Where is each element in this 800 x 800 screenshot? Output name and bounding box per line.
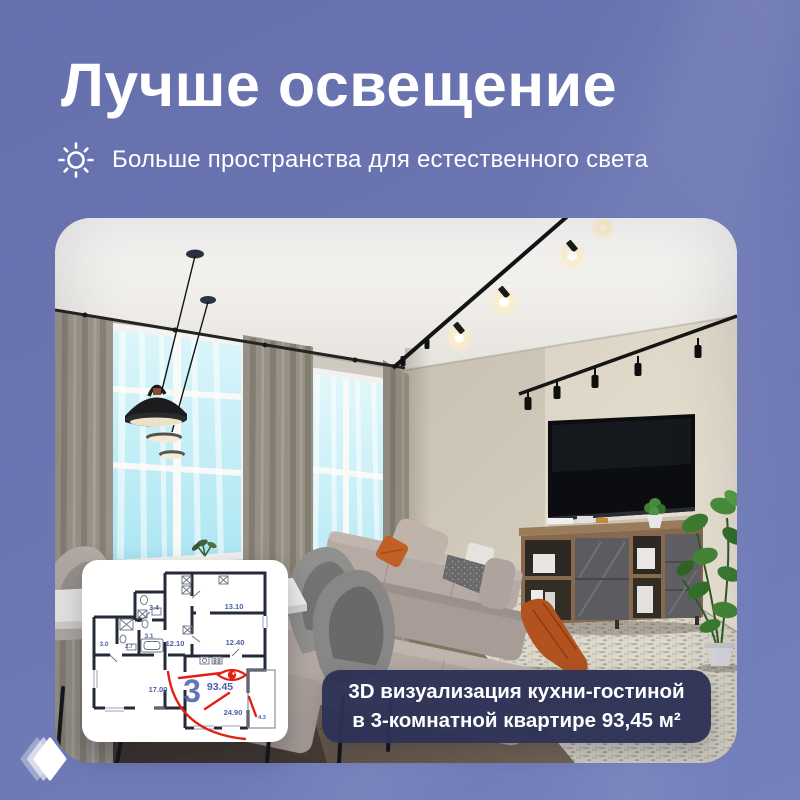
room-area-label: 24.90 bbox=[224, 708, 243, 717]
subtitle: Больше пространства для естественного св… bbox=[112, 146, 648, 174]
logo bbox=[20, 737, 78, 783]
eye-icon bbox=[218, 670, 246, 680]
page-title: Лучше освещение bbox=[61, 50, 617, 120]
floor-plan-card: 3.4 13.10 12.40 3.0 2.7 3.1 12.10 17.00 … bbox=[82, 560, 288, 742]
badge-line-1: 3D визуализация кухни-гостиной bbox=[348, 678, 684, 706]
room-area-label: 3.1 bbox=[144, 633, 153, 640]
room-area-label: 2.7 bbox=[125, 644, 133, 650]
room-area-label: 13.10 bbox=[225, 602, 244, 611]
room-area-label: 12.10 bbox=[166, 639, 185, 648]
info-badge: 3D визуализация кухни-гостиной в 3-комна… bbox=[322, 670, 711, 743]
plan-shafts bbox=[182, 576, 228, 634]
floor-plan: 3.4 13.10 12.40 3.0 2.7 3.1 12.10 17.00 … bbox=[82, 560, 288, 742]
plan-labels: 3.4 13.10 12.40 3.0 2.7 3.1 12.10 17.00 … bbox=[99, 602, 265, 721]
total-area-label: 93.45 bbox=[207, 681, 233, 693]
room-area-label: 12.40 bbox=[226, 638, 245, 647]
room-area-label: 3.4 bbox=[149, 605, 159, 612]
plan-fixtures bbox=[110, 591, 239, 664]
sun-icon bbox=[56, 140, 96, 180]
poster: { "header": { "title": "Лучше освещение"… bbox=[0, 0, 800, 800]
diamond-icon bbox=[22, 739, 65, 779]
subtitle-row: Больше пространства для естественного св… bbox=[56, 140, 746, 180]
room-area-label: 17.00 bbox=[149, 685, 168, 694]
room-area-label: 3.0 bbox=[99, 641, 108, 648]
window-left bbox=[105, 322, 248, 567]
room-area-label: 4.3 bbox=[258, 715, 266, 721]
badge-line-2: в 3-комнатной квартире 93,45 м² bbox=[352, 707, 680, 735]
